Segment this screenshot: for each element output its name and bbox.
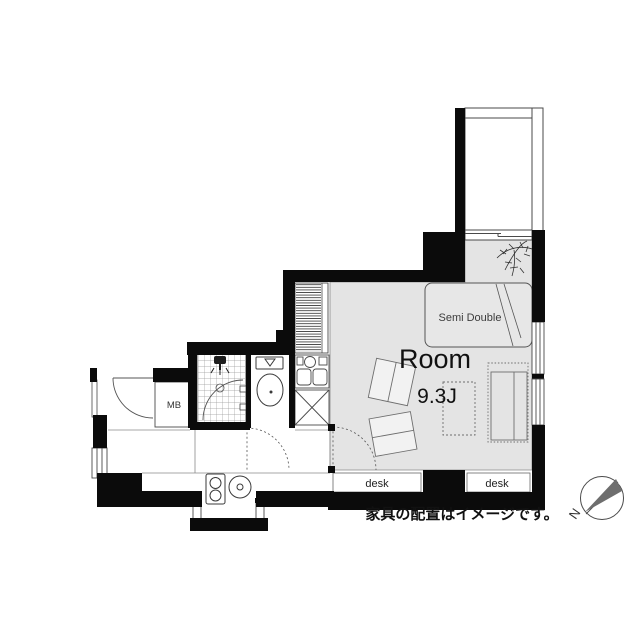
desk-left-label: desk (365, 478, 389, 490)
right-window-upper (532, 322, 544, 374)
wall-pillar (423, 232, 465, 282)
wall-bath-left (188, 342, 197, 428)
wall-right-upper (532, 230, 545, 322)
compass: N (566, 477, 624, 522)
meter-box-label: MB (167, 400, 181, 411)
wall-toilet-right (289, 352, 295, 428)
wall-balcony-left (455, 108, 465, 233)
desk-left: desk (333, 473, 421, 492)
entrance-door (113, 378, 153, 418)
washbasin (295, 355, 329, 388)
right-window-lower (532, 379, 544, 425)
kitchen-sink (229, 476, 251, 498)
toilet (256, 357, 283, 406)
desk-right-label: desk (485, 478, 509, 490)
wall-bottom-mid (256, 491, 334, 507)
window-sill-stub (532, 374, 544, 379)
wall-room-top (285, 270, 425, 282)
wall-entry-stub (90, 368, 97, 382)
corridor-lines (108, 430, 333, 473)
wall-bottom-left (142, 491, 202, 507)
balcony-railing (532, 108, 543, 232)
balcony-top-edge (465, 108, 543, 118)
closet (295, 283, 328, 353)
room-size-label: 9.3J (417, 385, 457, 408)
wall-bath-toilet (246, 350, 251, 428)
caption-text: 家具の配置はイメージです。 (365, 505, 558, 523)
balcony (465, 108, 543, 240)
wall-doorway-stub-top (328, 424, 335, 431)
meter-box: MB (155, 382, 193, 427)
room-label: Room (399, 344, 471, 374)
desk-right: desk (467, 473, 530, 492)
left-thin-wall (92, 380, 97, 417)
wall-right-lower (532, 425, 545, 510)
bed: Semi Double (425, 283, 532, 347)
floor-cushion-lower (369, 412, 417, 457)
bed-label: Semi Double (439, 312, 502, 324)
balcony-sliding-door (465, 230, 532, 240)
washing-machine-space (295, 390, 329, 425)
compass-north-label: N (566, 506, 584, 522)
stove (206, 474, 225, 504)
wall-doorway-stub-bottom (328, 466, 335, 473)
balcony-floor (465, 118, 532, 230)
wall-left-mid (93, 415, 107, 448)
bathroom (197, 353, 246, 425)
wall-bath-top (187, 342, 293, 355)
wall-desk-divider (423, 470, 465, 494)
wall-bath-bottom (190, 422, 250, 430)
wall-mb-top (153, 368, 197, 382)
wall-left-corner (97, 473, 142, 507)
floorplan-page: Semi Double (0, 0, 640, 640)
floorplan-drawing: Semi Double (0, 0, 640, 640)
toilet-door-swing (247, 428, 289, 470)
